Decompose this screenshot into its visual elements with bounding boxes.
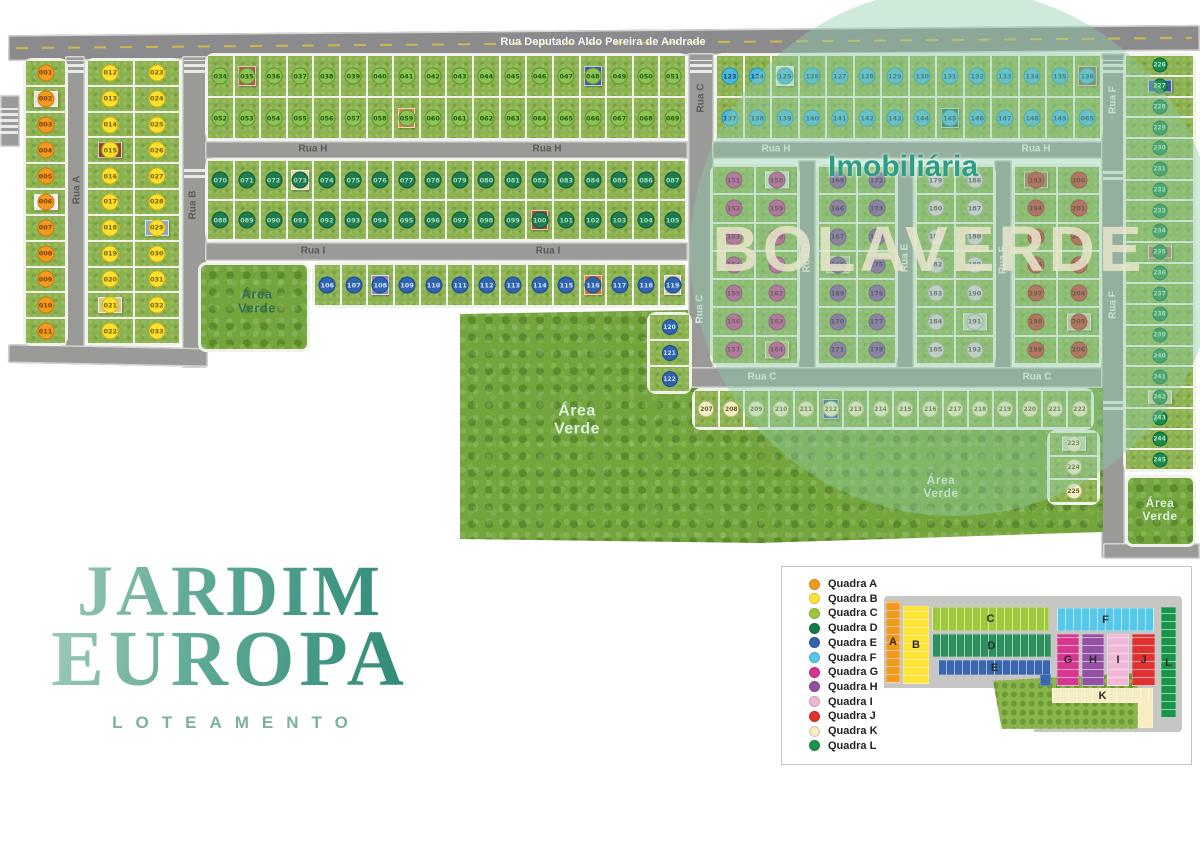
lot-number: 069 xyxy=(664,110,681,127)
lot-number: 010 xyxy=(37,297,54,314)
lot-number: 215 xyxy=(897,401,913,417)
lot-031: 031 xyxy=(135,268,180,292)
legend-color-dot xyxy=(809,579,820,590)
lot-142: 142 xyxy=(855,98,881,138)
legend-label: Quadra J xyxy=(828,710,876,722)
quadra-e-block-e2: 120121122 xyxy=(647,312,692,394)
legend-item-quadra-e: Quadra E xyxy=(809,637,877,649)
street-label: Rua C xyxy=(748,372,777,383)
lot-205: 205 xyxy=(1058,308,1099,334)
lot-number: 105 xyxy=(664,212,681,229)
legend-item-quadra-k: Quadra K xyxy=(809,725,878,737)
lot-223: 223 xyxy=(1050,433,1097,455)
lot-058: 058 xyxy=(368,98,393,138)
lot-number: 164 xyxy=(768,341,785,358)
lot-number: 083 xyxy=(558,172,575,189)
lot-048: 048 xyxy=(581,56,606,96)
lot-113: 113 xyxy=(501,265,526,305)
quadra-k-block-k2: 223224225 xyxy=(1047,430,1100,505)
quadra-a-block-a: 001002003004005006007008009010011 xyxy=(23,58,68,346)
lot-087: 087 xyxy=(660,161,685,199)
logo-word-europa: EUROPA xyxy=(28,624,432,697)
lot-number: 034 xyxy=(212,68,229,85)
lot-number: 146 xyxy=(969,110,986,127)
lot-number: 004 xyxy=(37,142,54,159)
lot-116: 116 xyxy=(581,265,606,305)
lot-number: 065 xyxy=(1079,110,1096,127)
legend-color-dot xyxy=(809,652,820,663)
lot-238: 238 xyxy=(1126,305,1193,324)
lot-number: 038 xyxy=(318,68,335,85)
lot-213: 213 xyxy=(844,391,867,427)
lot-number: 074 xyxy=(318,172,335,189)
lot-130: 130 xyxy=(910,56,936,96)
lot-number: 162 xyxy=(768,285,785,302)
lot-209: 209 xyxy=(745,391,768,427)
lot-number: 133 xyxy=(996,68,1013,85)
lot-226: 226 xyxy=(1126,56,1193,75)
lot-number: 151 xyxy=(725,172,742,189)
lot-number: 031 xyxy=(148,271,165,288)
lot-number: 026 xyxy=(148,142,165,159)
lot-number: 193 xyxy=(1027,172,1044,189)
lot-107: 107 xyxy=(342,265,367,305)
minimap-block-fragment xyxy=(1040,674,1051,686)
lot-080: 080 xyxy=(474,161,499,199)
lot-number: 037 xyxy=(292,68,309,85)
lot-145: 145 xyxy=(937,98,963,138)
lot-number: 185 xyxy=(927,341,944,358)
lot-078: 078 xyxy=(421,161,446,199)
legend-label: Quadra L xyxy=(828,740,876,752)
lot-032: 032 xyxy=(135,293,180,317)
lot-number: 125 xyxy=(776,68,793,85)
street-label: Rua Deputado Aldo Pereira de Andrade xyxy=(500,36,705,48)
lot-028: 028 xyxy=(135,190,180,214)
lot-number: 239 xyxy=(1152,328,1167,343)
lot-number: 106 xyxy=(319,277,336,294)
lot-185: 185 xyxy=(917,337,954,363)
lot-number: 120 xyxy=(662,319,678,335)
lot-number: 076 xyxy=(371,172,388,189)
lot-033: 033 xyxy=(135,319,180,343)
lot-184: 184 xyxy=(917,308,954,334)
logo-subtitle: LOTEAMENTO xyxy=(28,713,432,733)
lot-number: 245 xyxy=(1152,452,1167,467)
green-area-label: Área Verde xyxy=(1142,497,1177,523)
lot-088: 088 xyxy=(208,201,233,239)
lot-number: 158 xyxy=(768,172,785,189)
legend-color-dot xyxy=(809,711,820,722)
legend-color-dot xyxy=(809,667,820,678)
lot-number: 089 xyxy=(238,212,255,229)
lot-146: 146 xyxy=(965,98,991,138)
lot-220: 220 xyxy=(1018,391,1041,427)
legend-color-dot xyxy=(809,740,820,751)
lot-042: 042 xyxy=(421,56,446,96)
lot-number: 103 xyxy=(611,212,628,229)
lot-010: 010 xyxy=(26,293,65,317)
lot-number: 028 xyxy=(148,193,165,210)
quadra-f-block-f: 1231241251261271281291301311321331341351… xyxy=(714,53,1103,141)
lot-083: 083 xyxy=(554,161,579,199)
lot-number: 140 xyxy=(804,110,821,127)
lot-number: 171 xyxy=(829,341,846,358)
lot-number: 221 xyxy=(1047,401,1063,417)
lot-number: 075 xyxy=(345,172,362,189)
lot-number: 073 xyxy=(292,172,309,189)
lot-number: 131 xyxy=(941,68,958,85)
lot-149: 149 xyxy=(1047,98,1073,138)
road xyxy=(205,141,688,159)
crosswalk xyxy=(184,60,205,73)
lot-number: 177 xyxy=(868,313,885,330)
lot-number: 176 xyxy=(868,285,885,302)
lot-039: 039 xyxy=(341,56,366,96)
lot-216: 216 xyxy=(919,391,942,427)
street-label: Rua F xyxy=(1108,86,1119,114)
lot-040: 040 xyxy=(368,56,393,96)
lot-099: 099 xyxy=(501,201,526,239)
lot-number: 149 xyxy=(1051,110,1068,127)
lot-number: 047 xyxy=(558,68,575,85)
lot-number: 023 xyxy=(148,64,165,81)
lot-115: 115 xyxy=(554,265,579,305)
lot-number: 244 xyxy=(1152,431,1167,446)
lot-045: 045 xyxy=(501,56,526,96)
lot-number: 030 xyxy=(148,245,165,262)
lot-109: 109 xyxy=(395,265,420,305)
lot-number: 045 xyxy=(505,68,522,85)
quadra-e-block-e1: 1061071081091101111121131141151161171181… xyxy=(312,262,688,308)
lot-number: 123 xyxy=(721,68,738,85)
lot-number: 043 xyxy=(451,68,468,85)
lot-008: 008 xyxy=(26,242,65,266)
lot-number: 218 xyxy=(972,401,988,417)
lot-025: 025 xyxy=(135,113,180,137)
lot-211: 211 xyxy=(795,391,818,427)
lot-198: 198 xyxy=(1015,308,1056,334)
lot-number: 093 xyxy=(345,212,362,229)
crosswalk xyxy=(690,60,712,73)
lot-number: 192 xyxy=(966,341,983,358)
lot-number: 231 xyxy=(1152,162,1167,177)
lot-228: 228 xyxy=(1126,98,1193,117)
lot-131: 131 xyxy=(937,56,963,96)
lot-242: 242 xyxy=(1126,388,1193,407)
street-label: Rua H xyxy=(299,144,328,155)
lot-093: 093 xyxy=(341,201,366,239)
lot-number: 237 xyxy=(1152,286,1167,301)
lot-103: 103 xyxy=(607,201,632,239)
lot-126: 126 xyxy=(800,56,826,96)
lot-number: 144 xyxy=(914,110,931,127)
minimap-quadra-letter: B xyxy=(912,639,920,651)
lot-034: 034 xyxy=(208,56,233,96)
lot-243: 243 xyxy=(1126,409,1193,428)
lot-number: 138 xyxy=(749,110,766,127)
lot-number: 169 xyxy=(829,285,846,302)
lot-number: 155 xyxy=(725,285,742,302)
lot-026: 026 xyxy=(135,138,180,162)
minimap-quadra-letter: I xyxy=(1116,654,1119,666)
lot-number: 070 xyxy=(212,172,229,189)
lot-084: 084 xyxy=(581,161,606,199)
lot-number: 041 xyxy=(398,68,415,85)
watermark-brand-text: BOLAVERDE xyxy=(694,212,1164,286)
lot-number: 216 xyxy=(922,401,938,417)
lot-193: 193 xyxy=(1015,167,1056,193)
lot-number: 223 xyxy=(1066,436,1082,452)
lot-135: 135 xyxy=(1047,56,1073,96)
lot-007: 007 xyxy=(26,216,65,240)
lot-050: 050 xyxy=(634,56,659,96)
lot-number: 101 xyxy=(558,212,575,229)
lot-118: 118 xyxy=(634,265,659,305)
lot-061: 061 xyxy=(447,98,472,138)
lot-120: 120 xyxy=(650,315,689,339)
legend-item-quadra-b: Quadra B xyxy=(809,593,878,605)
legend-label: Quadra B xyxy=(828,593,878,605)
legend-label: Quadra F xyxy=(828,652,876,664)
legend-color-dot xyxy=(809,608,820,619)
lot-091: 091 xyxy=(288,201,313,239)
lot-number: 081 xyxy=(505,172,522,189)
logo: JARDIM EUROPA LOTEAMENTO xyxy=(28,558,432,733)
lot-number: 033 xyxy=(148,323,165,340)
legend-item-quadra-c: Quadra C xyxy=(809,607,878,619)
lot-049: 049 xyxy=(607,56,632,96)
crosswalk xyxy=(1103,60,1123,73)
lot-021: 021 xyxy=(88,293,133,317)
lot-number: 057 xyxy=(345,110,362,127)
lot-number: 018 xyxy=(102,219,119,236)
crosswalk xyxy=(1103,398,1123,410)
lot-number: 224 xyxy=(1066,459,1082,475)
lot-077: 077 xyxy=(394,161,419,199)
lot-003: 003 xyxy=(26,113,65,137)
lot-147: 147 xyxy=(992,98,1018,138)
logo-word-jardim: JARDIM xyxy=(28,558,432,624)
lot-156: 156 xyxy=(713,308,754,334)
minimap-quadra-letter: F xyxy=(1102,614,1109,626)
street-label: Rua I xyxy=(301,246,325,257)
lot-074: 074 xyxy=(314,161,339,199)
lot-144: 144 xyxy=(910,98,936,138)
lot-number: 017 xyxy=(102,193,119,210)
lot-100: 100 xyxy=(527,201,552,239)
lot-191: 191 xyxy=(956,308,993,334)
lot-number: 190 xyxy=(966,285,983,302)
street-label: Rua H xyxy=(1022,144,1051,155)
lot-number: 124 xyxy=(749,68,766,85)
lot-129: 129 xyxy=(882,56,908,96)
lot-number: 032 xyxy=(148,297,165,314)
lot-106: 106 xyxy=(315,265,340,305)
lot-number: 016 xyxy=(102,168,119,185)
lot-141: 141 xyxy=(827,98,853,138)
lot-136: 136 xyxy=(1075,56,1101,96)
lot-number: 061 xyxy=(451,110,468,127)
lot-number: 078 xyxy=(425,172,442,189)
lot-009: 009 xyxy=(26,268,65,292)
green-area-label: Área Verde xyxy=(238,288,276,317)
lot-240: 240 xyxy=(1126,347,1193,366)
lot-number: 184 xyxy=(927,313,944,330)
lot-037: 037 xyxy=(288,56,313,96)
minimap-quadra-letter: C xyxy=(987,613,995,625)
lot-number: 118 xyxy=(638,277,655,294)
lot-number: 222 xyxy=(1072,401,1088,417)
lot-089: 089 xyxy=(235,201,260,239)
lot-number: 094 xyxy=(371,212,388,229)
lot-number: 135 xyxy=(1051,68,1068,85)
lot-035: 035 xyxy=(235,56,260,96)
lot-number: 036 xyxy=(265,68,282,85)
lot-number: 104 xyxy=(638,212,655,229)
lot-092: 092 xyxy=(314,201,339,239)
lot-004: 004 xyxy=(26,138,65,162)
lot-038: 038 xyxy=(314,56,339,96)
lot-123: 123 xyxy=(717,56,743,96)
lot-245: 245 xyxy=(1126,450,1193,469)
lot-122: 122 xyxy=(650,367,689,391)
minimap-quadra-letter: E xyxy=(991,662,998,674)
lot-057: 057 xyxy=(341,98,366,138)
legend-label: Quadra D xyxy=(828,622,878,634)
lot-065: 065 xyxy=(1075,98,1101,138)
lot-number: 241 xyxy=(1152,369,1167,384)
lot-number: 122 xyxy=(662,371,678,387)
lot-164: 164 xyxy=(756,337,797,363)
legend-color-dot xyxy=(809,637,820,648)
legend-item-quadra-i: Quadra I xyxy=(809,696,873,708)
lot-number: 191 xyxy=(966,313,983,330)
street-label: Rua C xyxy=(695,295,706,324)
lot-143: 143 xyxy=(882,98,908,138)
lot-192: 192 xyxy=(956,337,993,363)
lot-number: 090 xyxy=(265,212,282,229)
lot-090: 090 xyxy=(261,201,286,239)
lot-104: 104 xyxy=(634,201,659,239)
lot-114: 114 xyxy=(528,265,553,305)
lot-number: 097 xyxy=(451,212,468,229)
lot-number: 213 xyxy=(848,401,864,417)
lot-044: 044 xyxy=(474,56,499,96)
lot-056: 056 xyxy=(314,98,339,138)
lot-number: 129 xyxy=(886,68,903,85)
lot-number: 011 xyxy=(37,323,54,340)
street-label: Rua A xyxy=(72,176,83,205)
lot-098: 098 xyxy=(474,201,499,239)
lot-number: 066 xyxy=(584,110,601,127)
lot-069: 069 xyxy=(660,98,685,138)
lot-148: 148 xyxy=(1020,98,1046,138)
lot-number: 198 xyxy=(1027,313,1044,330)
lot-024: 024 xyxy=(135,87,180,111)
lot-217: 217 xyxy=(944,391,967,427)
lot-number: 225 xyxy=(1066,483,1082,499)
lot-215: 215 xyxy=(894,391,917,427)
lot-218: 218 xyxy=(969,391,992,427)
lot-241: 241 xyxy=(1126,367,1193,386)
lot-number: 008 xyxy=(37,245,54,262)
lot-071: 071 xyxy=(235,161,260,199)
lot-020: 020 xyxy=(88,268,133,292)
lot-number: 020 xyxy=(102,271,119,288)
lot-081: 081 xyxy=(501,161,526,199)
lot-number: 058 xyxy=(371,110,388,127)
lot-number: 207 xyxy=(698,401,714,417)
lot-number: 242 xyxy=(1152,390,1167,405)
lot-number: 243 xyxy=(1152,411,1167,426)
lot-079: 079 xyxy=(447,161,472,199)
legend-color-dot xyxy=(809,623,820,634)
legend-label: Quadra H xyxy=(828,681,878,693)
lot-059: 059 xyxy=(394,98,419,138)
quadra-b-block-b: 0120230130240140250150260160270170280180… xyxy=(85,58,182,346)
lot-065: 065 xyxy=(554,98,579,138)
lot-132: 132 xyxy=(965,56,991,96)
legend-color-dot xyxy=(809,681,820,692)
lot-number: 001 xyxy=(37,64,54,81)
lot-number: 117 xyxy=(611,277,628,294)
lot-number: 210 xyxy=(773,401,789,417)
lot-number: 055 xyxy=(292,110,309,127)
legend-item-quadra-a: Quadra A xyxy=(809,578,877,590)
lot-number: 214 xyxy=(873,401,889,417)
lot-number: 085 xyxy=(611,172,628,189)
quadra-c-block-c: 0340350360370380390400410420430440450460… xyxy=(205,53,688,141)
street-label: Rua F xyxy=(1108,291,1119,319)
lot-number: 212 xyxy=(823,401,839,417)
lot-221: 221 xyxy=(1043,391,1066,427)
lot-199: 199 xyxy=(1015,337,1056,363)
lot-number: 051 xyxy=(664,68,681,85)
lot-number: 232 xyxy=(1152,182,1167,197)
lot-number: 228 xyxy=(1152,99,1167,114)
lot-number: 200 xyxy=(1070,172,1087,189)
lot-097: 097 xyxy=(447,201,472,239)
lot-041: 041 xyxy=(394,56,419,96)
lot-119: 119 xyxy=(660,265,685,305)
lot-111: 111 xyxy=(448,265,473,305)
lot-number: 003 xyxy=(37,116,54,133)
street-label: Rua C xyxy=(1023,372,1052,383)
lot-102: 102 xyxy=(581,201,606,239)
legend-item-quadra-d: Quadra D xyxy=(809,622,878,634)
lot-117: 117 xyxy=(607,265,632,305)
legend-label: Quadra K xyxy=(828,725,878,737)
lot-013: 013 xyxy=(88,87,133,111)
lot-178: 178 xyxy=(858,337,895,363)
legend-label: Quadra I xyxy=(828,696,873,708)
lot-005: 005 xyxy=(26,164,65,188)
lot-054: 054 xyxy=(261,98,286,138)
lot-number: 053 xyxy=(238,110,255,127)
lot-number: 137 xyxy=(721,110,738,127)
lot-number: 141 xyxy=(831,110,848,127)
green-area-label: Área Verde xyxy=(554,402,600,437)
lot-number: 067 xyxy=(611,110,628,127)
lot-number: 096 xyxy=(425,212,442,229)
lot-number: 145 xyxy=(941,110,958,127)
lot-number: 009 xyxy=(37,271,54,288)
lot-number: 040 xyxy=(371,68,388,85)
lot-number: 128 xyxy=(859,68,876,85)
lot-number: 199 xyxy=(1027,341,1044,358)
lot-number: 112 xyxy=(478,277,495,294)
